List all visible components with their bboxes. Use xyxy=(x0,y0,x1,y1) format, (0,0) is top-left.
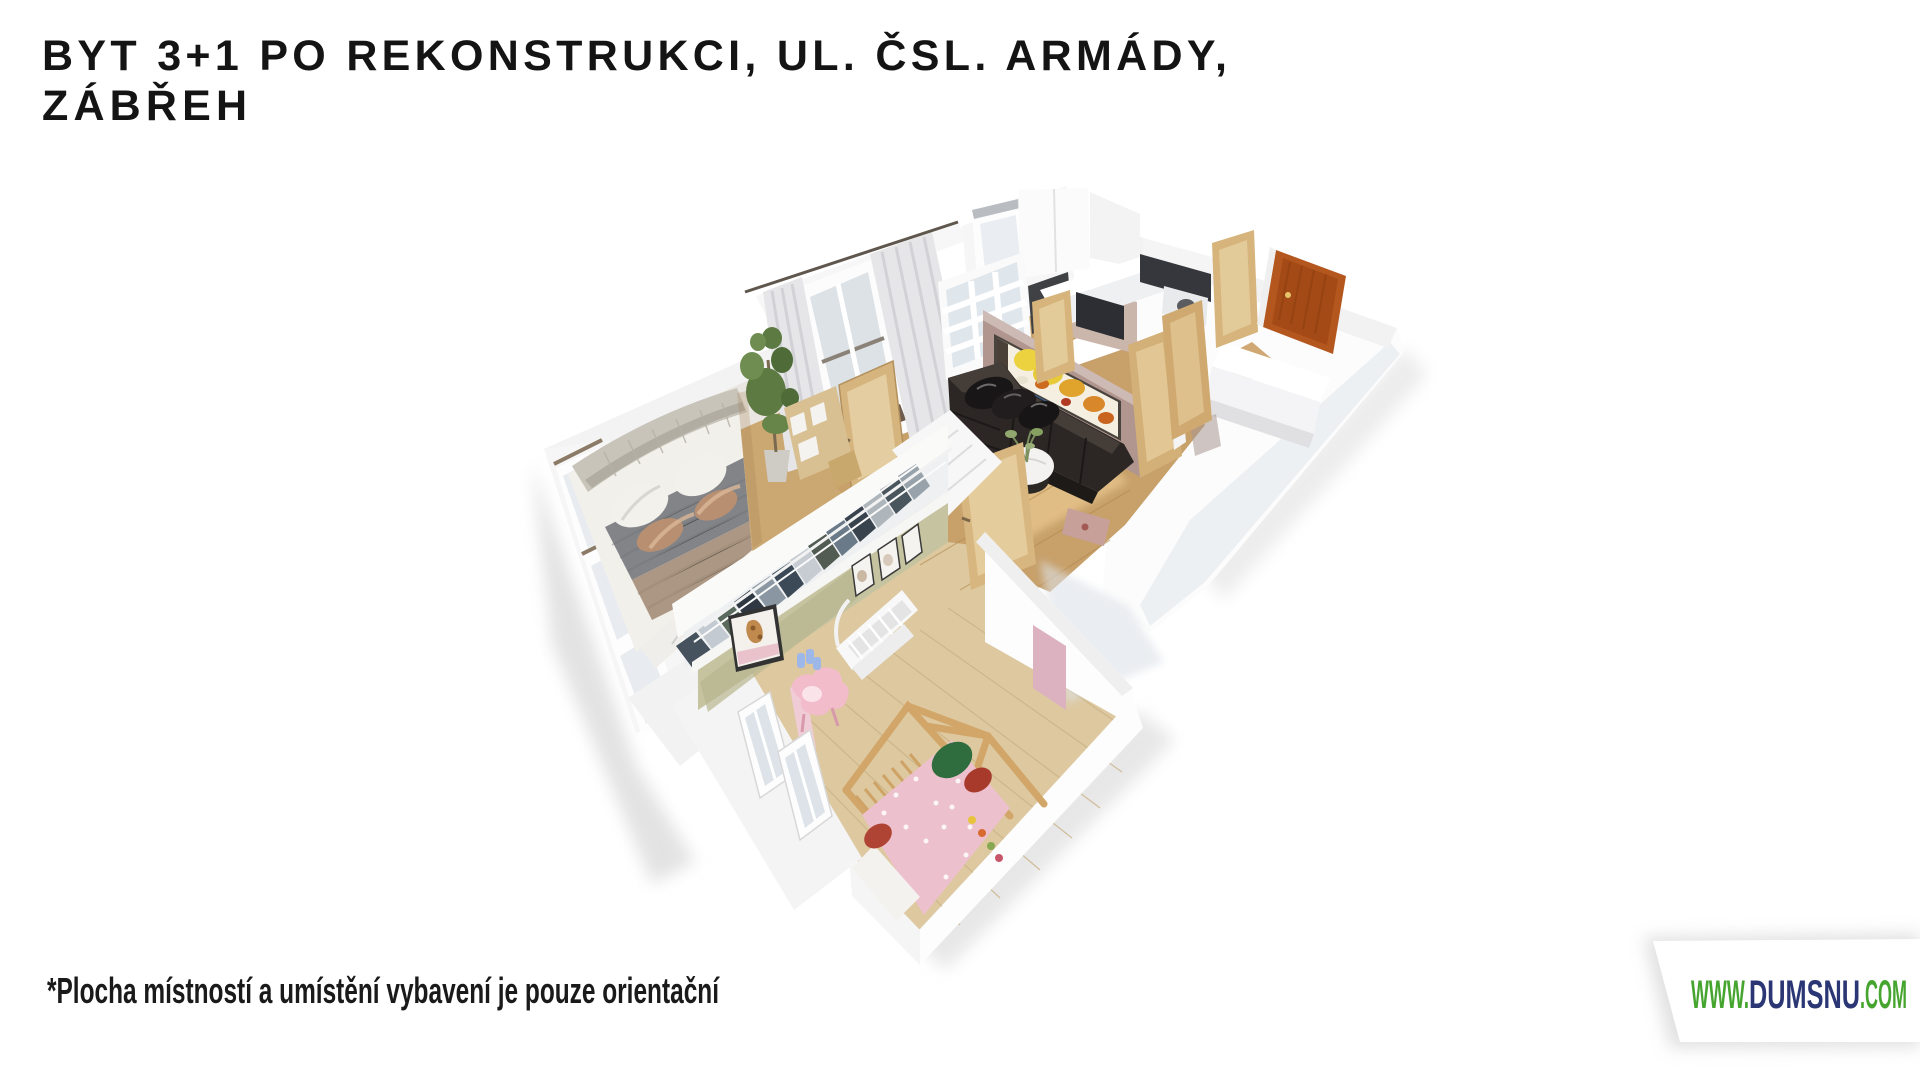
svg-text:DUMSNU: DUMSNU xyxy=(1749,973,1860,1017)
svg-text:.COM: .COM xyxy=(1860,973,1907,1017)
svg-text:WWW.: WWW. xyxy=(1691,973,1749,1017)
svg-text:BYT 3+1 PO REKONSTRUKCI, UL. Č: BYT 3+1 PO REKONSTRUKCI, UL. ČSL. ARMÁDY… xyxy=(42,31,1227,80)
svg-text:*Plocha místností a umístění v: *Plocha místností a umístění vybavení je… xyxy=(47,970,720,1011)
